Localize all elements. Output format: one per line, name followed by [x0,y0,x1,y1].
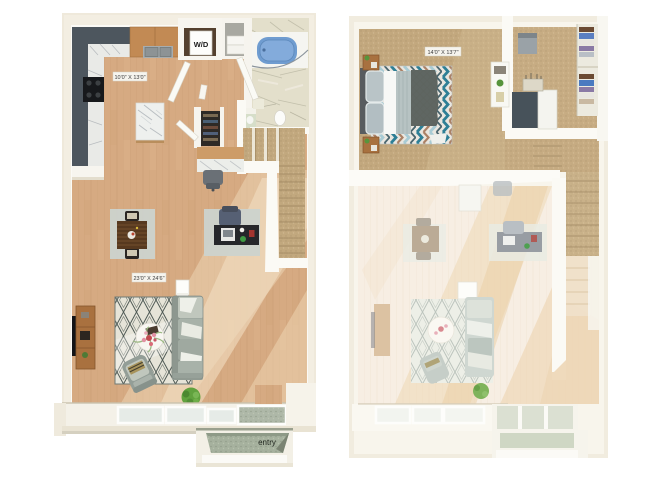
svg-text:10'0" X 13'0": 10'0" X 13'0" [114,75,145,81]
svg-text:W/D: W/D [194,40,209,49]
svg-text:14'0" X 13'7": 14'0" X 13'7" [427,50,458,56]
svg-text:23'0" X 24'6": 23'0" X 24'6" [133,276,164,282]
svg-text:entry: entry [258,438,276,447]
